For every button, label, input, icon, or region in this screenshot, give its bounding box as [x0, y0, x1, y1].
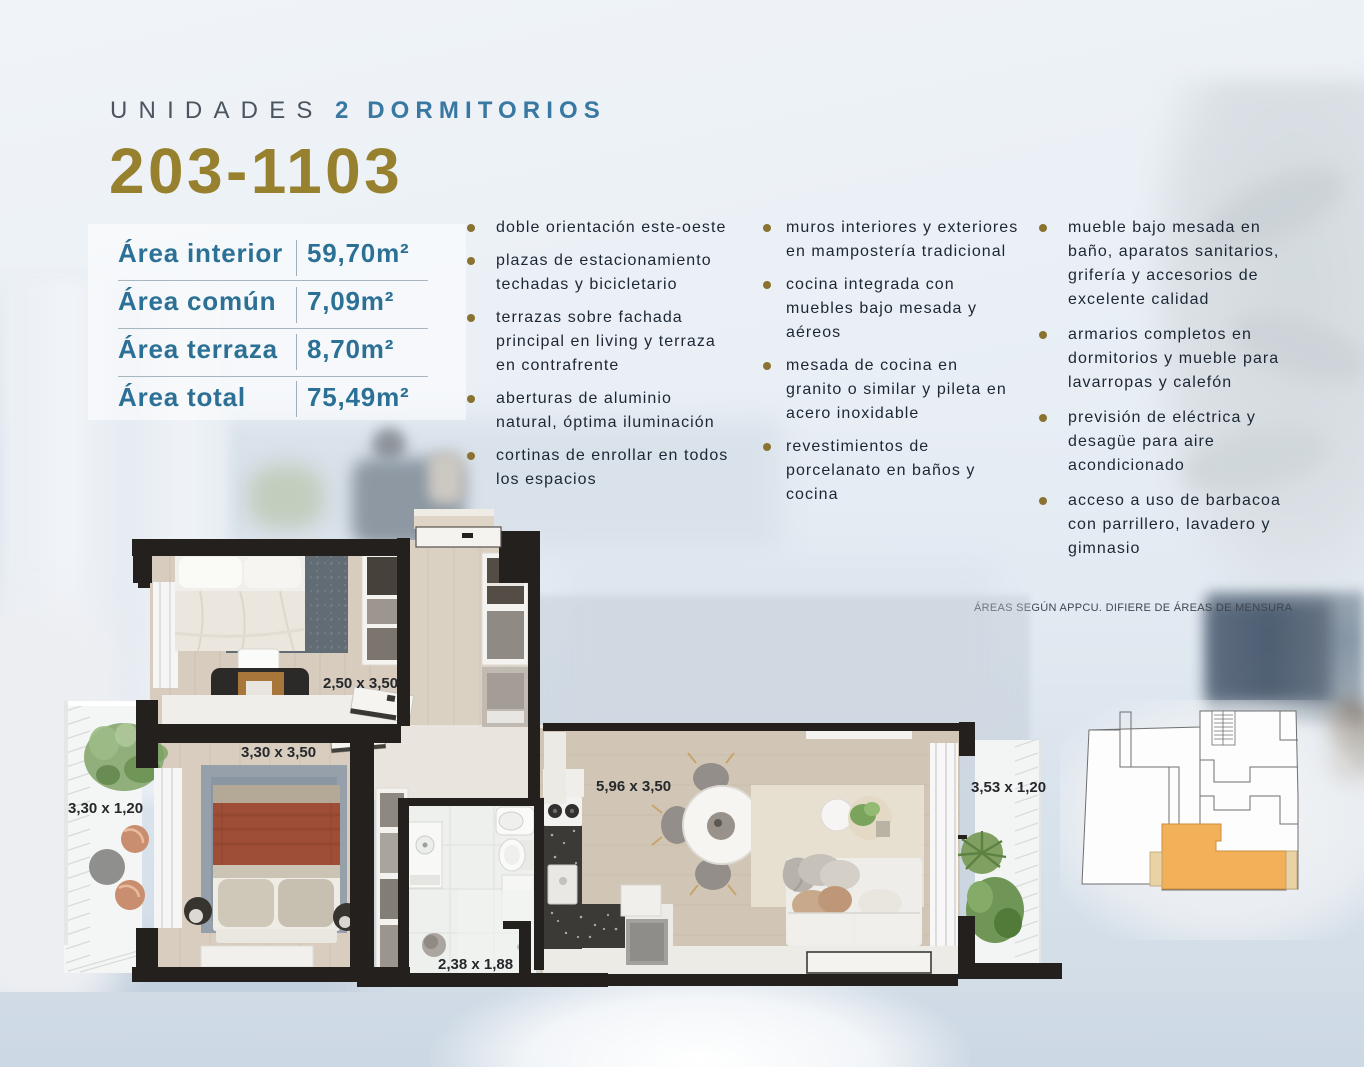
svg-text:3,30 x 1,20: 3,30 x 1,20 — [68, 800, 143, 817]
svg-text:2,38 x 1,88: 2,38 x 1,88 — [438, 956, 513, 973]
svg-text:2,50 x 3,50: 2,50 x 3,50 — [323, 675, 398, 692]
svg-text:3,53 x 1,20: 3,53 x 1,20 — [971, 779, 1046, 796]
svg-text:5,96 x 3,50: 5,96 x 3,50 — [596, 778, 671, 795]
svg-text:3,30 x 3,50: 3,30 x 3,50 — [241, 744, 316, 761]
